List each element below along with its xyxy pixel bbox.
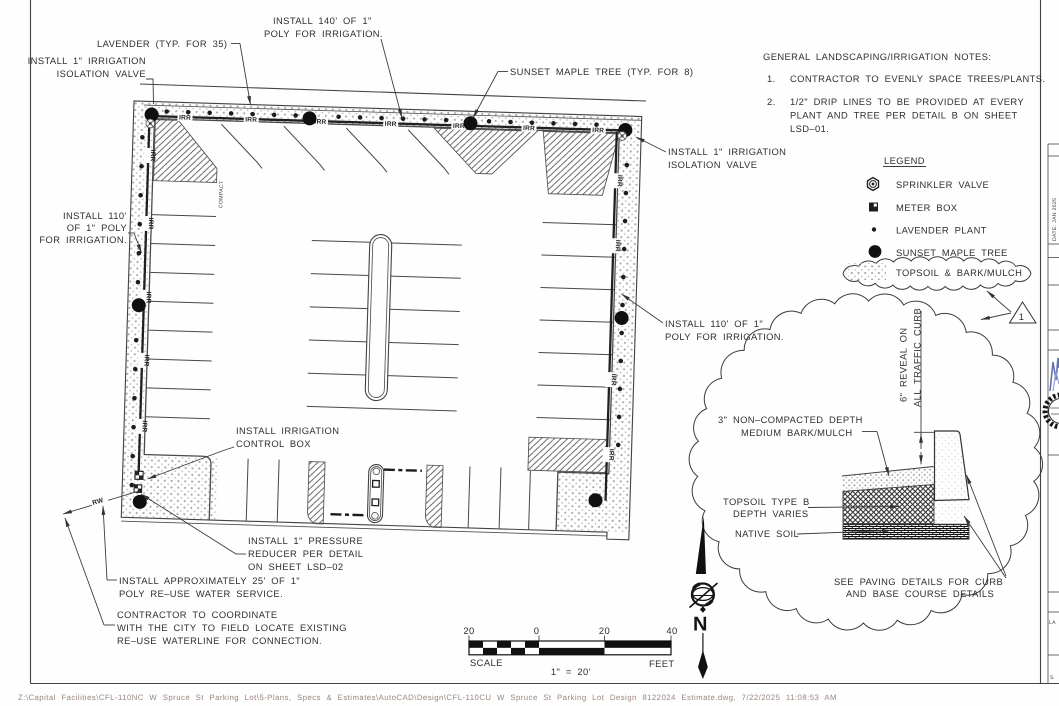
svg-text:METER BOX: METER BOX [896, 202, 958, 213]
svg-text:SEE PAVING DETAILS FOR CURB: SEE PAVING DETAILS FOR CURB [834, 576, 1003, 587]
svg-text:LAVENDER (TYP. FOR 35): LAVENDER (TYP. FOR 35) [97, 38, 227, 49]
svg-text:IRR: IRR [607, 449, 614, 461]
svg-text:IRR: IRR [245, 117, 257, 124]
svg-text:CONTRACTOR TO COORDINATE: CONTRACTOR TO COORDINATE [117, 609, 277, 620]
svg-text:GENERAL LANDSCAPING/IRRIGATION: GENERAL LANDSCAPING/IRRIGATION NOTES: [763, 51, 991, 62]
svg-text:N: N [693, 614, 707, 636]
svg-text:IRR: IRR [149, 150, 156, 162]
svg-text:POLY RE–USE WATER SERVICE.: POLY RE–USE WATER SERVICE. [119, 588, 283, 599]
svg-text:SUNSET MAPLE TREE: SUNSET MAPLE TREE [896, 247, 1008, 258]
svg-text:NATIVE SOIL: NATIVE SOIL [735, 528, 799, 539]
svg-text:ISOLATION VALVE: ISOLATION VALVE [57, 68, 146, 79]
svg-text:MEDIUM BARK/MULCH: MEDIUM BARK/MULCH [741, 427, 853, 438]
svg-text:IRR: IRR [144, 291, 151, 303]
svg-text:IRR: IRR [610, 374, 617, 386]
svg-text:IRR: IRR [147, 217, 154, 229]
svg-text:IRR: IRR [616, 175, 623, 187]
svg-text:1: 1 [1019, 311, 1025, 322]
svg-text:FOR IRRIGATION.: FOR IRRIGATION. [39, 234, 127, 245]
svg-text:DEPTH VARIES: DEPTH VARIES [733, 508, 808, 519]
svg-text:IRR: IRR [142, 354, 149, 366]
svg-text:IRR: IRR [179, 114, 191, 121]
svg-text:INSTALL 1" IRRIGATION: INSTALL 1" IRRIGATION [668, 146, 786, 157]
svg-text:RE–USE WATERLINE FOR CONNECTIO: RE–USE WATERLINE FOR CONNECTION. [117, 635, 322, 646]
svg-text:LEGEND: LEGEND [884, 155, 925, 166]
svg-text:POLY FOR IRRIGATION.: POLY FOR IRRIGATION. [264, 28, 383, 39]
svg-text:INSTALL APPROXIMATELY 25’ OF 1: INSTALL APPROXIMATELY 25’ OF 1" [119, 575, 300, 586]
svg-text:DATE: JAN 2025: DATE: JAN 2025 [1052, 198, 1058, 241]
svg-text:3" NON–COMPACTED DEPTH: 3" NON–COMPACTED DEPTH [718, 414, 863, 425]
svg-text:INSTALL 1" PRESSURE: INSTALL 1" PRESSURE [248, 535, 363, 546]
svg-text:40: 40 [666, 625, 677, 636]
svg-text:INSTALL 110’: INSTALL 110’ [63, 210, 127, 221]
svg-text:REDUCER PER DETAIL: REDUCER PER DETAIL [248, 548, 363, 559]
svg-text:WITH THE CITY TO FIELD LOCATE: WITH THE CITY TO FIELD LOCATE EXISTING [117, 622, 347, 633]
svg-text:0: 0 [534, 625, 540, 636]
svg-text:IRR: IRR [453, 123, 465, 130]
svg-text:SCALE: SCALE [470, 657, 503, 668]
svg-text:FEET: FEET [649, 658, 675, 669]
svg-text:IRR: IRR [140, 420, 147, 432]
svg-text:1.: 1. [767, 73, 776, 84]
svg-text:SUNSET MAPLE TREE (TYP. FOR 8): SUNSET MAPLE TREE (TYP. FOR 8) [510, 66, 693, 77]
svg-text:IRR: IRR [592, 127, 604, 134]
svg-text:CONTROL BOX: CONTROL BOX [236, 438, 311, 449]
svg-text:IRR: IRR [385, 121, 397, 128]
svg-text:IRR: IRR [614, 240, 621, 252]
svg-text:1/2" DRIP LINES TO BE PROVIDED: 1/2" DRIP LINES TO BE PROVIDED AT EVERY [790, 96, 1024, 107]
svg-text:COMPACT: COMPACT [218, 180, 225, 208]
svg-text:S: S [1050, 675, 1054, 681]
svg-text:TOPSOIL TYPE B: TOPSOIL TYPE B [723, 496, 810, 507]
svg-text:ON SHEET LSD–02: ON SHEET LSD–02 [248, 561, 343, 572]
svg-text:IRR: IRR [523, 125, 535, 132]
svg-text:1" = 20’: 1" = 20’ [551, 666, 591, 677]
svg-text:6" REVEAL ON: 6" REVEAL ON [898, 328, 909, 402]
svg-text:PLANT AND TREE PER DETAIL B ON: PLANT AND TREE PER DETAIL B ON SHEET [790, 110, 1018, 121]
svg-text:INSTALL 140’ OF 1": INSTALL 140’ OF 1" [273, 15, 372, 26]
svg-text:20: 20 [599, 625, 610, 636]
svg-text:CONTRACTOR TO EVENLY SPACE TRE: CONTRACTOR TO EVENLY SPACE TREES/PLANTS. [790, 73, 1045, 84]
svg-text:INSTALL 1" IRRIGATION: INSTALL 1" IRRIGATION [28, 55, 146, 66]
svg-text:LAVENDER PLANT: LAVENDER PLANT [896, 225, 987, 236]
svg-text:INSTALL 110’ OF 1": INSTALL 110’ OF 1" [665, 318, 763, 329]
svg-text:OF 1" POLY: OF 1" POLY [67, 222, 128, 233]
svg-text:TOPSOIL & BARK/MULCH: TOPSOIL & BARK/MULCH [896, 267, 1022, 278]
svg-text:INSTALL IRRIGATION: INSTALL IRRIGATION [236, 425, 339, 436]
svg-text:20: 20 [463, 625, 474, 636]
svg-text:ISOLATION VALVE: ISOLATION VALVE [668, 159, 757, 170]
svg-text:Z:\Capital Facilities\CFL-110N: Z:\Capital Facilities\CFL-110NC W Spruce… [18, 693, 837, 702]
svg-text:2.: 2. [767, 96, 776, 107]
svg-text:POLY FOR IRRIGATION.: POLY FOR IRRIGATION. [665, 331, 784, 342]
svg-text:SPRINKLER VALVE: SPRINKLER VALVE [896, 179, 989, 190]
svg-text:AND BASE COURSE DETAILS: AND BASE COURSE DETAILS [846, 588, 994, 599]
svg-text:LA: LA [1049, 620, 1056, 626]
svg-text:LSD–01.: LSD–01. [790, 123, 829, 134]
